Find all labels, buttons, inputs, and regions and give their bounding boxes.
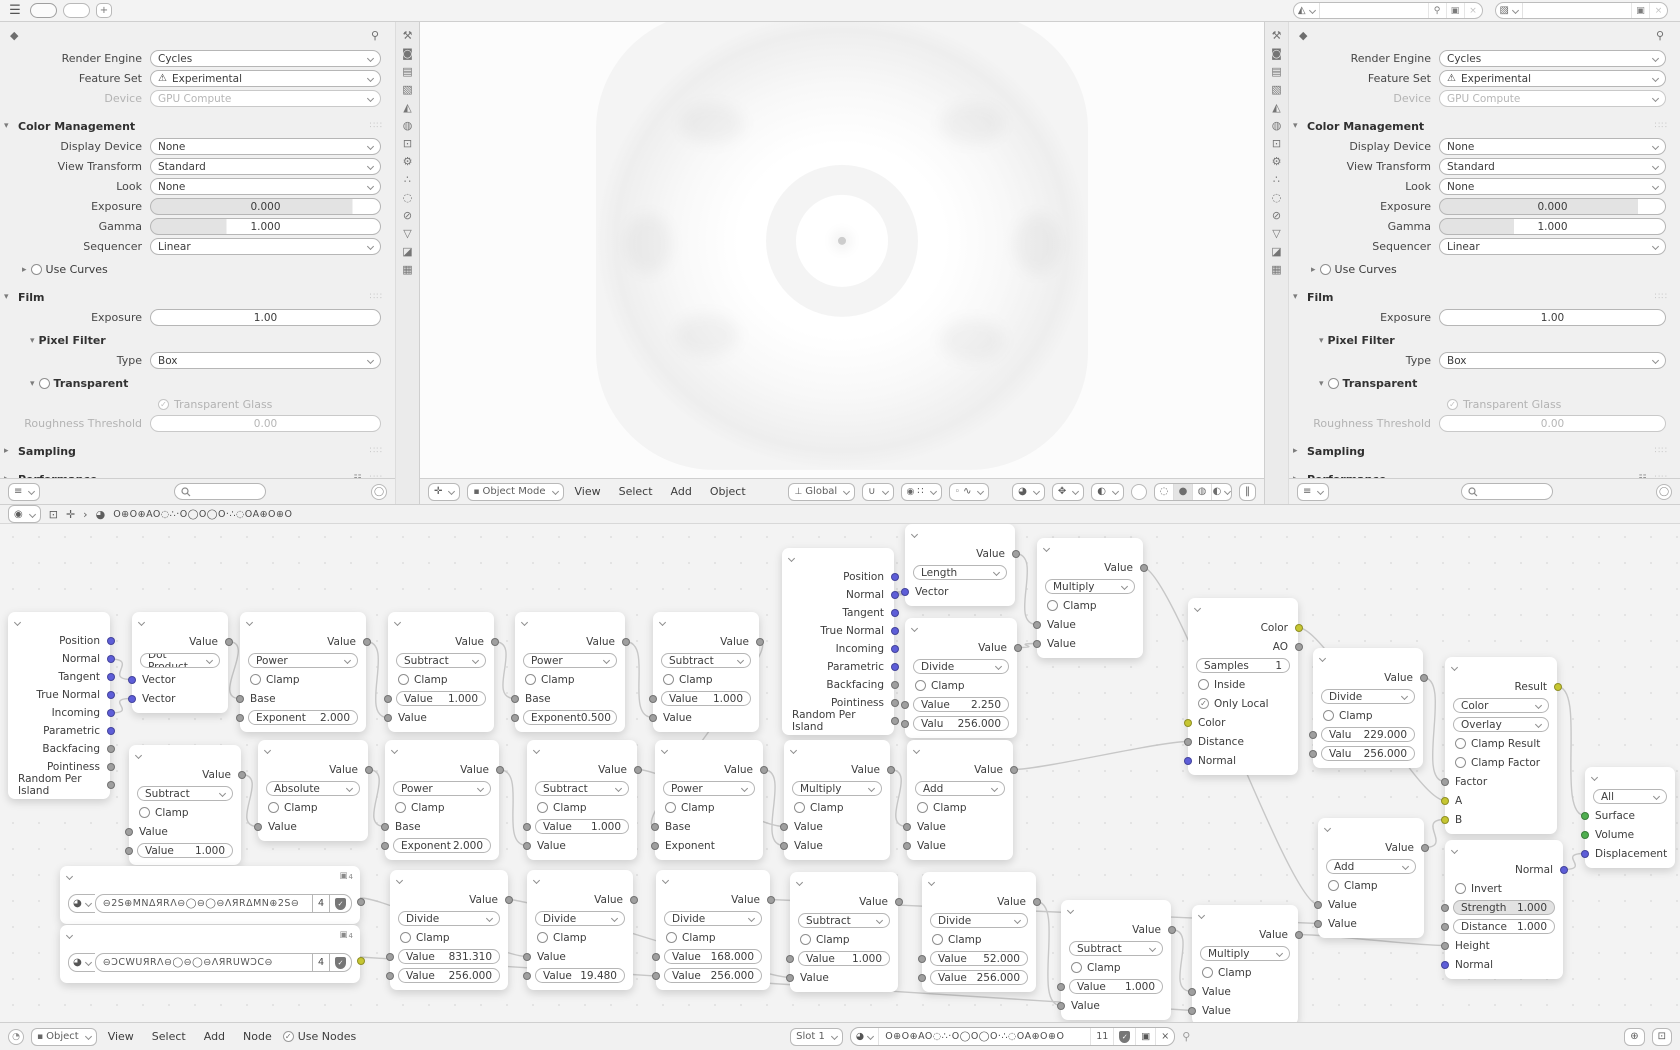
feature-set-dropdown[interactable]: ⚠Experimental: [1439, 70, 1666, 87]
socket-output[interactable]: [107, 763, 115, 771]
value-value-field[interactable]: Value1.000: [1069, 979, 1163, 994]
socket-input[interactable]: [384, 695, 392, 703]
node-header[interactable]: [905, 524, 1015, 544]
node-19[interactable]: ValueAbsoluteClampValue: [258, 740, 368, 841]
socket-input[interactable]: [1314, 920, 1322, 928]
tool-icon[interactable]: ⚒: [400, 30, 416, 41]
node-25[interactable]: ▣4◕⊖2S⊕MNΔЯRΛ⊖◯⊖◯⊖ΛЯRΔMN⊕2S⊖4✓: [60, 866, 360, 924]
socket-output[interactable]: [107, 745, 115, 753]
divide-dropdown[interactable]: Divide: [664, 911, 762, 926]
value-value-field[interactable]: Value256.000: [664, 968, 762, 983]
device-dropdown[interactable]: GPU Compute: [1439, 90, 1666, 107]
subtract-dropdown[interactable]: Subtract: [137, 786, 233, 801]
material-icon[interactable]: ◪: [1269, 246, 1285, 257]
node-header[interactable]: ▣4: [60, 925, 360, 945]
socket-output[interactable]: [891, 645, 899, 653]
socket-output[interactable]: [357, 898, 365, 906]
node-26[interactable]: ▣4◕⊖ƆCWUЯRΛ⊖◯⊖◯⊖ΛЯRUWƆC⊖4✓: [60, 925, 360, 983]
divide-dropdown[interactable]: Divide: [913, 659, 1009, 674]
node-4[interactable]: ValuePowerClampBaseExponent0.500: [515, 612, 625, 732]
look-dropdown[interactable]: None: [1439, 178, 1666, 195]
checkbox-clamp[interactable]: Clamp: [665, 802, 715, 814]
pin-icon[interactable]: ⚲: [1656, 29, 1664, 42]
node-header[interactable]: [1192, 905, 1298, 925]
socket-output[interactable]: [491, 638, 499, 646]
socket-input[interactable]: [780, 842, 788, 850]
checkbox-clamp[interactable]: Clamp: [525, 674, 575, 686]
subsection-transparent[interactable]: ▾Transparent: [1289, 374, 1672, 393]
view-layer-icon[interactable]: ▧: [1496, 3, 1523, 18]
node-6[interactable]: PositionNormalTangentTrue NormalIncoming…: [782, 548, 894, 735]
delete-scene-button[interactable]: ×: [1464, 3, 1482, 18]
node-header[interactable]: ▣4: [60, 866, 360, 886]
collapse-chevron-icon[interactable]: [1319, 654, 1326, 661]
object-data-icon[interactable]: ▽: [400, 228, 416, 239]
value-value-field[interactable]: Value1.000: [661, 691, 751, 706]
shader-type-dropdown[interactable]: ▪Object: [31, 1028, 97, 1046]
socket-output[interactable]: [357, 957, 365, 965]
node-header[interactable]: [1445, 657, 1557, 677]
node-22[interactable]: ValuePowerClampBaseExponent: [655, 740, 763, 860]
node-23[interactable]: ValueMultiplyClampValueValue: [784, 740, 890, 860]
node-30[interactable]: ValueSubtractClampValue1.000Value: [790, 872, 898, 992]
socket-input[interactable]: [1581, 831, 1589, 839]
socket-input[interactable]: [651, 842, 659, 850]
shading-solid-button[interactable]: ●: [1174, 484, 1193, 500]
type-dropdown[interactable]: Box: [150, 352, 381, 369]
socket-output[interactable]: [630, 896, 638, 904]
object-data-icon[interactable]: ▽: [1269, 228, 1285, 239]
view-layer-name-input[interactable]: [1523, 3, 1631, 18]
pin-icon[interactable]: ⚲: [371, 29, 379, 42]
collapse-chevron-icon[interactable]: [135, 751, 142, 758]
node-header[interactable]: [8, 612, 110, 632]
socket-input[interactable]: [652, 953, 660, 961]
checkbox-clamp[interactable]: Clamp: [537, 932, 587, 944]
socket-input[interactable]: [1188, 1007, 1196, 1015]
distance-value-field[interactable]: Distance1.000: [1453, 919, 1555, 934]
overlay-dropdown[interactable]: Overlay: [1453, 717, 1549, 732]
checkbox-clamp[interactable]: Clamp: [917, 802, 967, 814]
collapse-chevron-icon[interactable]: [790, 746, 797, 753]
socket-output[interactable]: [107, 655, 115, 663]
render-icon[interactable]: ◙: [1269, 48, 1285, 59]
view-layer-icon[interactable]: ▧: [400, 84, 416, 95]
node-header[interactable]: [1061, 900, 1171, 920]
node-9[interactable]: ValueDivideClampValue2.250Valu256.000: [905, 618, 1017, 738]
socket-output[interactable]: [1295, 931, 1303, 939]
proportional-edit-button[interactable]: ◉∷: [901, 483, 942, 501]
socket-output[interactable]: [1014, 644, 1022, 652]
filter-options-button[interactable]: ◯: [371, 484, 387, 500]
socket-output[interactable]: [891, 663, 899, 671]
collapse-chevron-icon[interactable]: [521, 618, 528, 625]
view-layer-icon[interactable]: ▧: [1269, 84, 1285, 95]
node-header[interactable]: [1037, 538, 1143, 558]
node-header[interactable]: [656, 870, 770, 890]
collapse-chevron-icon[interactable]: [1043, 544, 1050, 551]
socket-input[interactable]: [381, 823, 389, 831]
exposure-slider[interactable]: 0.000: [150, 198, 381, 215]
socket-input[interactable]: [1441, 797, 1449, 805]
collapse-chevron-icon[interactable]: [1194, 604, 1201, 611]
multiply-dropdown[interactable]: Multiply: [1045, 579, 1135, 594]
checkbox-clamp[interactable]: Clamp: [1323, 710, 1373, 722]
collapse-chevron-icon[interactable]: [1451, 846, 1458, 853]
search-field[interactable]: [174, 483, 266, 500]
users-count-button[interactable]: 4: [313, 894, 330, 913]
section-header-film[interactable]: ▾Film∷∷: [1289, 287, 1672, 307]
node-header[interactable]: [132, 612, 228, 632]
output-icon[interactable]: ▤: [1269, 66, 1285, 77]
length-dropdown[interactable]: Length: [913, 565, 1007, 580]
checkbox-icon[interactable]: [39, 378, 50, 389]
socket-input[interactable]: [649, 695, 657, 703]
node-7[interactable]: ValueLengthVector: [905, 524, 1015, 606]
constraints-icon[interactable]: ⊘: [1269, 210, 1285, 221]
checkbox-only-local[interactable]: ✓Only Local: [1198, 698, 1269, 710]
collapse-chevron-icon[interactable]: [394, 618, 401, 625]
editor-type-button[interactable]: ✛: [428, 483, 460, 501]
node-header[interactable]: [655, 740, 763, 760]
socket-input[interactable]: [511, 714, 519, 722]
shading-rendered-button[interactable]: ◐: [1212, 484, 1231, 500]
checkbox-clamp[interactable]: Clamp: [932, 934, 982, 946]
node-27[interactable]: ValueDivideClampValue831.310Value256.000: [390, 870, 508, 990]
checkbox-clamp[interactable]: Clamp: [1047, 600, 1097, 612]
look-dropdown[interactable]: None: [150, 178, 381, 195]
node-header[interactable]: [784, 740, 890, 760]
checkbox-clamp[interactable]: Clamp: [400, 932, 450, 944]
node-header[interactable]: [385, 740, 499, 760]
node-header[interactable]: [907, 740, 1013, 760]
browse-script-icon[interactable]: ◕: [68, 953, 95, 972]
display-device-dropdown[interactable]: None: [1439, 138, 1666, 155]
checkbox-inside[interactable]: Inside: [1198, 679, 1245, 691]
scene-icon[interactable]: ◭: [1269, 102, 1285, 113]
subsection-pixel-filter[interactable]: ▾Pixel Filter: [1289, 331, 1672, 350]
checkbox-clamp[interactable]: Clamp: [666, 932, 716, 944]
socket-input[interactable]: [1581, 812, 1589, 820]
checkbox-icon[interactable]: ✓: [158, 399, 169, 410]
xray-toggle[interactable]: [1131, 484, 1147, 500]
editor-type-button[interactable]: ≡: [1297, 483, 1329, 501]
socket-output[interactable]: [1295, 643, 1303, 651]
tool-icon[interactable]: ⚒: [1269, 30, 1285, 41]
socket-input[interactable]: [1184, 719, 1192, 727]
modifiers-icon[interactable]: ⚙: [400, 156, 416, 167]
node-header[interactable]: [1313, 648, 1423, 668]
checkbox-clamp[interactable]: Clamp: [1328, 880, 1378, 892]
socket-input[interactable]: [254, 823, 262, 831]
node-header[interactable]: [905, 618, 1017, 638]
socket-output[interactable]: [1421, 844, 1429, 852]
output-icon[interactable]: ▤: [400, 66, 416, 77]
checkbox-invert[interactable]: Invert: [1455, 883, 1502, 895]
socket-output[interactable]: [107, 781, 115, 789]
collapse-chevron-icon[interactable]: [391, 746, 398, 753]
socket-input[interactable]: [125, 828, 133, 836]
divide-dropdown[interactable]: Divide: [398, 911, 500, 926]
collapse-chevron-icon[interactable]: [928, 878, 935, 885]
workspace-tab-1[interactable]: [30, 3, 57, 18]
power-dropdown[interactable]: Power: [393, 781, 491, 796]
pin-scene-icon[interactable]: ⚲: [1428, 3, 1446, 18]
collapse-chevron-icon[interactable]: [1067, 906, 1074, 913]
fractal-object[interactable]: [596, 22, 1088, 470]
node-header[interactable]: [390, 870, 508, 890]
checkbox-clamp[interactable]: Clamp: [1202, 967, 1252, 979]
collapse-chevron-icon[interactable]: [1198, 911, 1205, 918]
search-field[interactable]: [1461, 483, 1553, 500]
node-5[interactable]: ValueSubtractClampValue1.000Value: [653, 612, 759, 732]
node-view-menu[interactable]: View: [104, 1030, 138, 1043]
new-view-layer-button[interactable]: ▣: [1631, 3, 1649, 18]
constraints-icon[interactable]: ⊘: [400, 210, 416, 221]
collapse-chevron-icon[interactable]: [1591, 773, 1598, 780]
node-header[interactable]: [790, 872, 898, 892]
socket-output[interactable]: [496, 766, 504, 774]
node-header[interactable]: [515, 612, 625, 632]
world-icon[interactable]: ◍: [400, 120, 416, 131]
script-name-field[interactable]: ⊖ƆCWUЯRΛ⊖◯⊖◯⊖ΛЯRUWƆC⊖: [95, 953, 313, 972]
feature-set-dropdown[interactable]: ⚠Experimental: [150, 70, 381, 87]
checkbox-row-transparent-glass[interactable]: ✓Transparent Glass: [0, 395, 387, 413]
subtract-dropdown[interactable]: Subtract: [535, 781, 629, 796]
render-engine-dropdown[interactable]: Cycles: [150, 50, 381, 67]
checkbox-icon[interactable]: [1320, 264, 1331, 275]
absolute-dropdown[interactable]: Absolute: [266, 781, 360, 796]
socket-output[interactable]: [887, 766, 895, 774]
socket-output[interactable]: [891, 681, 899, 689]
socket-output[interactable]: [767, 896, 775, 904]
node-24[interactable]: ValueAddClampValueValue: [907, 740, 1013, 860]
collapse-chevron-icon[interactable]: [913, 746, 920, 753]
checkbox-clamp-result[interactable]: Clamp Result: [1455, 738, 1540, 750]
node-header[interactable]: [388, 612, 494, 632]
socket-input[interactable]: [386, 953, 394, 961]
node-14[interactable]: NormalInvertStrength1.000Distance1.000He…: [1445, 840, 1563, 979]
socket-output[interactable]: [1168, 926, 1176, 934]
editor-type-button[interactable]: ◔: [8, 1029, 24, 1045]
socket-input[interactable]: [652, 972, 660, 980]
roughness-threshold-field[interactable]: 0.00: [1439, 415, 1666, 432]
collapse-chevron-icon[interactable]: [661, 746, 668, 753]
collapse-chevron-icon[interactable]: [66, 872, 73, 879]
material-icon[interactable]: ◪: [400, 246, 416, 257]
collapse-chevron-icon[interactable]: [1324, 824, 1331, 831]
socket-input[interactable]: [1441, 942, 1449, 950]
snap-toggle-button[interactable]: ∪: [862, 483, 893, 501]
node-18[interactable]: ValueSubtractClampValueValue1.000: [129, 745, 241, 865]
checkbox-clamp[interactable]: Clamp: [398, 674, 448, 686]
object-icon[interactable]: ⊡: [1269, 138, 1285, 149]
dot-product-dropdown[interactable]: Dot Product: [140, 653, 220, 668]
socket-input[interactable]: [128, 676, 136, 684]
value-value-field[interactable]: Value256.000: [398, 968, 500, 983]
shading-material-button[interactable]: ◍: [1193, 484, 1212, 500]
subtract-dropdown[interactable]: Subtract: [661, 653, 751, 668]
world-icon[interactable]: ◍: [1269, 120, 1285, 131]
socket-input[interactable]: [1188, 988, 1196, 996]
material-users-button[interactable]: 11: [1091, 1028, 1114, 1045]
node-add-menu[interactable]: Add: [200, 1030, 229, 1043]
divide-dropdown[interactable]: Divide: [930, 913, 1028, 928]
socket-output[interactable]: [1033, 898, 1041, 906]
value-value-field[interactable]: Value1.000: [137, 843, 233, 858]
socket-input[interactable]: [384, 714, 392, 722]
socket-output[interactable]: [1140, 564, 1148, 572]
mode-dropdown[interactable]: ▪Object Mode: [467, 483, 563, 501]
value-value-field[interactable]: Value2.250: [913, 697, 1009, 712]
exponent-value-field[interactable]: Exponent0.500: [523, 710, 617, 725]
socket-input[interactable]: [381, 842, 389, 850]
node-28[interactable]: ValueDivideClampValueValue19.480: [527, 870, 633, 990]
node-2[interactable]: ValuePowerClampBaseExponent2.000: [240, 612, 366, 732]
node-header[interactable]: [782, 548, 894, 568]
socket-input[interactable]: [523, 823, 531, 831]
node-12[interactable]: ResultColorOverlayClamp ResultClamp Fact…: [1445, 657, 1557, 834]
socket-input[interactable]: [523, 972, 531, 980]
use-nodes-toggle[interactable]: ✓ Use Nodes: [283, 1030, 357, 1043]
socket-output[interactable]: [1012, 550, 1020, 558]
node-10[interactable]: ColorAOSamples1Inside✓Only LocalColorDis…: [1188, 598, 1298, 775]
exposure-field[interactable]: 1.00: [150, 309, 381, 326]
node-select-menu[interactable]: Select: [148, 1030, 190, 1043]
node-header[interactable]: [1318, 818, 1424, 838]
checkbox-clamp[interactable]: Clamp: [663, 674, 713, 686]
scene-icon[interactable]: ◭: [400, 102, 416, 113]
color-dropdown[interactable]: Color: [1453, 698, 1549, 713]
socket-input[interactable]: [1441, 778, 1449, 786]
checkbox-clamp[interactable]: Clamp: [915, 680, 965, 692]
value-value-field[interactable]: Value1.000: [396, 691, 486, 706]
subtract-dropdown[interactable]: Subtract: [396, 653, 486, 668]
power-dropdown[interactable]: Power: [248, 653, 358, 668]
socket-input[interactable]: [918, 974, 926, 982]
checkbox-icon[interactable]: ✓: [1447, 399, 1458, 410]
roughness-threshold-field[interactable]: 0.00: [150, 415, 381, 432]
object-icon[interactable]: ⊡: [400, 138, 416, 149]
node-3[interactable]: ValueSubtractClampValue1.000Value: [388, 612, 494, 732]
socket-input[interactable]: [128, 695, 136, 703]
value-value-field[interactable]: Value168.000: [664, 949, 762, 964]
socket-output[interactable]: [891, 717, 899, 725]
divide-dropdown[interactable]: Divide: [1321, 689, 1415, 704]
gamma-slider[interactable]: 1.000: [150, 218, 381, 235]
checkbox-clamp[interactable]: Clamp: [395, 802, 445, 814]
section-header-film[interactable]: ▾Film∷∷: [0, 287, 387, 307]
scene-name-input[interactable]: [1320, 3, 1428, 18]
section-header-color-management[interactable]: ▾Color Management∷∷: [0, 116, 387, 136]
checkbox-clamp[interactable]: Clamp: [1071, 962, 1121, 974]
section-header-sampling[interactable]: ▸Sampling∷∷: [0, 441, 387, 461]
node-11[interactable]: ValueDivideClampValu229.000Valu256.000: [1313, 648, 1423, 768]
exposure-slider[interactable]: 0.000: [1439, 198, 1666, 215]
display-device-dropdown[interactable]: None: [150, 138, 381, 155]
fake-user-shield-button[interactable]: ✓: [330, 953, 352, 972]
pause-render-button[interactable]: ‖: [1239, 483, 1256, 501]
collapse-chevron-icon[interactable]: [264, 746, 271, 753]
socket-output[interactable]: [1554, 683, 1562, 691]
socket-input[interactable]: [1057, 1002, 1065, 1010]
node-header[interactable]: [240, 612, 366, 632]
node-13[interactable]: AllSurfaceVolumeDisplacement: [1585, 767, 1675, 868]
section-header-performance[interactable]: ▸Performance☷∷∷: [1289, 469, 1672, 478]
collapse-chevron-icon[interactable]: [659, 618, 666, 625]
zoom-region-button[interactable]: ⊡: [1652, 1028, 1672, 1046]
collapse-chevron-icon[interactable]: [911, 530, 918, 537]
all-dropdown[interactable]: All: [1593, 789, 1667, 804]
filter-options-button[interactable]: ◯: [1656, 484, 1672, 500]
add-dropdown[interactable]: Add: [915, 781, 1005, 796]
fake-user-shield-button[interactable]: ✓: [330, 894, 352, 913]
view-transform-dropdown[interactable]: Standard: [150, 158, 381, 175]
valu-value-field[interactable]: Valu256.000: [913, 716, 1009, 731]
subsection-use-curves[interactable]: ▸Use Curves: [1289, 260, 1672, 279]
physics-icon[interactable]: ◌: [400, 192, 416, 203]
viewport-canvas[interactable]: [420, 22, 1264, 478]
socket-input[interactable]: [786, 955, 794, 963]
add-workspace-button[interactable]: +: [96, 3, 112, 18]
socket-output[interactable]: [107, 637, 115, 645]
browse-script-icon[interactable]: ◕: [68, 894, 95, 913]
editor-type-button[interactable]: ◉: [8, 505, 41, 523]
visibility-toggles-button[interactable]: ◕: [1012, 483, 1045, 501]
socket-input[interactable]: [1057, 983, 1065, 991]
exponent-value-field[interactable]: Exponent2.000: [393, 838, 491, 853]
socket-input[interactable]: [903, 842, 911, 850]
socket-input[interactable]: [1309, 731, 1317, 739]
socket-input[interactable]: [1309, 750, 1317, 758]
viewport-add-menu[interactable]: Add: [667, 485, 696, 498]
view-transform-dropdown[interactable]: Standard: [1439, 158, 1666, 175]
socket-input[interactable]: [1184, 738, 1192, 746]
socket-input[interactable]: [1184, 757, 1192, 765]
socket-input[interactable]: [780, 823, 788, 831]
socket-input[interactable]: [651, 823, 659, 831]
new-material-button[interactable]: ▣: [1136, 1028, 1156, 1045]
node-8[interactable]: ValueMultiplyClampValueValue: [1037, 538, 1143, 658]
socket-input[interactable]: [1441, 923, 1449, 931]
material-name-field[interactable]: O⊕O⊕AO◌∴·O◯O◯O·∴◌OA⊕O⊕O: [879, 1028, 1091, 1045]
socket-output[interactable]: [891, 573, 899, 581]
checkbox-clamp[interactable]: Clamp: [794, 802, 844, 814]
socket-input[interactable]: [1441, 961, 1449, 969]
collapse-chevron-icon[interactable]: [138, 618, 145, 625]
search-input[interactable]: [195, 486, 259, 497]
collapse-chevron-icon[interactable]: [246, 618, 253, 625]
editor-type-button[interactable]: ≡: [8, 483, 40, 501]
exponent-value-field[interactable]: Exponent2.000: [248, 710, 358, 725]
socket-output[interactable]: [895, 898, 903, 906]
node-header[interactable]: [258, 740, 368, 760]
script-name-field[interactable]: ⊖2S⊕MNΔЯRΛ⊖◯⊖◯⊖ΛЯRΔMN⊕2S⊖: [95, 894, 313, 913]
collapse-chevron-icon[interactable]: [911, 624, 918, 631]
socket-input[interactable]: [918, 955, 926, 963]
gizmos-button[interactable]: ✥: [1052, 483, 1084, 501]
viewport-object-menu[interactable]: Object: [706, 485, 750, 498]
subsection-transparent[interactable]: ▾Transparent: [0, 374, 387, 393]
socket-input[interactable]: [901, 588, 909, 596]
node-header[interactable]: [527, 870, 633, 890]
node-15[interactable]: ValueAddClampValueValue: [1318, 818, 1424, 938]
socket-input[interactable]: [1581, 850, 1589, 858]
checkbox-icon[interactable]: [1328, 378, 1339, 389]
add-node-icon[interactable]: ✛: [66, 508, 75, 521]
socket-output[interactable]: [1010, 766, 1018, 774]
node-header[interactable]: [129, 745, 241, 765]
